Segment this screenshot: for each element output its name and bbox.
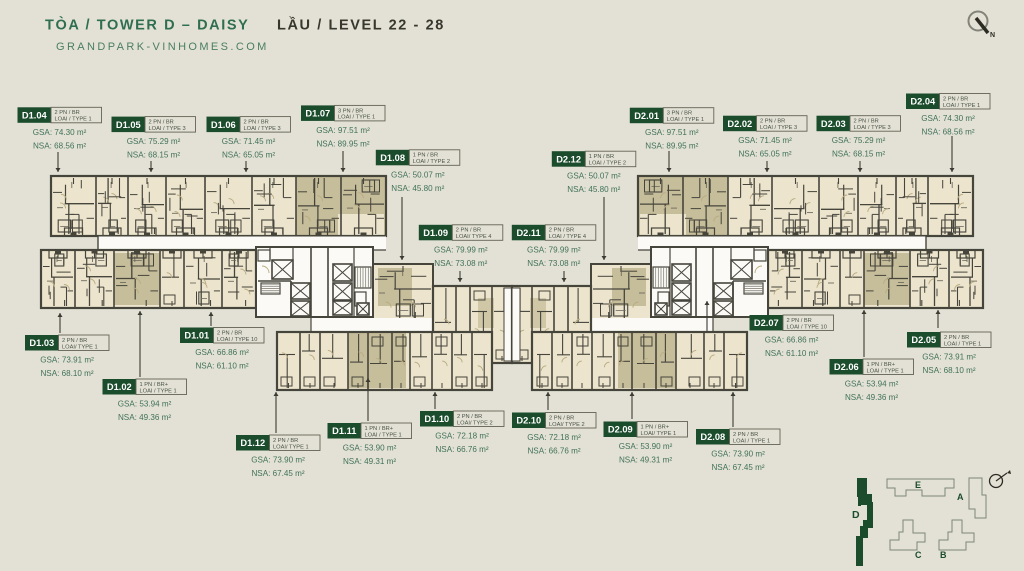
svg-text:D2.10: D2.10	[516, 416, 541, 426]
svg-text:LOAI / TYPE 4: LOAI / TYPE 4	[549, 234, 586, 240]
svg-text:NSA: 89.95 m²: NSA: 89.95 m²	[645, 142, 698, 151]
svg-text:NSA: 61.10 m²: NSA: 61.10 m²	[195, 362, 248, 371]
svg-text:2 PN / BR: 2 PN / BR	[62, 338, 87, 344]
svg-text:GSA: 97.51 m²: GSA: 97.51 m²	[645, 128, 699, 137]
svg-text:2 PN / BR: 2 PN / BR	[943, 96, 968, 102]
svg-text:D1.02: D1.02	[107, 382, 132, 392]
svg-text:LOAI/ TYPE 4: LOAI/ TYPE 4	[456, 234, 492, 240]
svg-text:D1.12: D1.12	[240, 438, 265, 448]
svg-text:NSA: 89.95 m²: NSA: 89.95 m²	[316, 139, 369, 148]
svg-text:2 PN / BR: 2 PN / BR	[149, 120, 174, 126]
svg-text:NSA: 45.80 m²: NSA: 45.80 m²	[391, 184, 444, 193]
svg-text:B: B	[940, 550, 947, 560]
svg-text:NSA: 68.15 m²: NSA: 68.15 m²	[832, 150, 885, 159]
svg-text:GSA: 53.94 m²: GSA: 53.94 m²	[845, 380, 899, 389]
svg-text:D1.04: D1.04	[22, 111, 48, 121]
svg-text:1 PN / BR+: 1 PN / BR+	[365, 426, 394, 432]
svg-text:D2.12: D2.12	[556, 154, 581, 164]
svg-text:2 PN / BR: 2 PN / BR	[549, 228, 574, 234]
svg-text:2 PN / BR: 2 PN / BR	[787, 318, 812, 324]
svg-text:2 PN / BR: 2 PN / BR	[549, 415, 574, 421]
svg-text:LOAI/ TYPE 2: LOAI/ TYPE 2	[549, 422, 585, 428]
svg-text:2 PN / BR: 2 PN / BR	[760, 119, 785, 125]
svg-text:D1.01: D1.01	[184, 331, 209, 341]
svg-text:GSA: 53.94 m²: GSA: 53.94 m²	[118, 400, 172, 409]
svg-text:N: N	[990, 32, 995, 39]
svg-text:D1.03: D1.03	[29, 338, 54, 348]
svg-text:LOAI / TYPE 1: LOAI / TYPE 1	[55, 117, 92, 123]
svg-text:D2.11: D2.11	[516, 228, 540, 238]
svg-text:GSA: 75.29 m²: GSA: 75.29 m²	[127, 137, 181, 146]
svg-text:D1.11: D1.11	[332, 426, 356, 436]
svg-text:GSA: 75.29 m²: GSA: 75.29 m²	[832, 136, 886, 145]
svg-text:D1.09: D1.09	[423, 228, 448, 238]
svg-text:D2.01: D2.01	[634, 111, 659, 121]
svg-text:LOAI / TYPE 1: LOAI / TYPE 1	[944, 341, 981, 347]
svg-text:NSA: 67.45 m²: NSA: 67.45 m²	[711, 463, 764, 472]
svg-text:NSA: 73.08 m²: NSA: 73.08 m²	[527, 259, 580, 268]
svg-text:1 PN / BR+: 1 PN / BR+	[140, 382, 169, 388]
svg-text:GSA: 73.91 m²: GSA: 73.91 m²	[922, 353, 976, 362]
svg-text:C: C	[915, 550, 922, 560]
svg-text:NSA: 61.10 m²: NSA: 61.10 m²	[765, 349, 818, 358]
svg-text:GSA: 73.90 m²: GSA: 73.90 m²	[251, 456, 305, 465]
svg-text:LOAI / TYPE 1: LOAI / TYPE 1	[733, 438, 770, 444]
svg-text:GSA: 50.07 m²: GSA: 50.07 m²	[391, 170, 445, 179]
svg-text:2 PN / BR: 2 PN / BR	[854, 119, 879, 125]
svg-text:LOAI/ TYPE 2: LOAI/ TYPE 2	[457, 420, 493, 426]
svg-text:2 PN / BR: 2 PN / BR	[733, 432, 758, 438]
svg-text:1 PN / BR+: 1 PN / BR+	[867, 362, 896, 368]
svg-text:NSA: 68.56 m²: NSA: 68.56 m²	[921, 128, 974, 137]
svg-text:LOAI / TYPE 3: LOAI / TYPE 3	[760, 125, 797, 131]
svg-text:NSA: 68.56 m²: NSA: 68.56 m²	[33, 141, 86, 150]
svg-text:NSA: 68.15 m²: NSA: 68.15 m²	[127, 151, 180, 160]
svg-text:NSA: 73.08 m²: NSA: 73.08 m²	[434, 259, 487, 268]
svg-text:A: A	[957, 492, 964, 502]
svg-text:GSA: 73.90 m²: GSA: 73.90 m²	[711, 450, 765, 459]
svg-text:GSA: 97.51 m²: GSA: 97.51 m²	[316, 126, 370, 135]
svg-text:GSA: 79.99 m²: GSA: 79.99 m²	[527, 245, 581, 254]
svg-text:LOAI / TYPE 2: LOAI / TYPE 2	[413, 159, 450, 165]
svg-text:3 PN / BR: 3 PN / BR	[667, 111, 692, 117]
svg-text:D2.04: D2.04	[910, 97, 936, 107]
svg-text:D2.06: D2.06	[834, 362, 859, 372]
svg-text:NSA: 45.80 m²: NSA: 45.80 m²	[567, 185, 620, 194]
svg-text:NSA: 49.36 m²: NSA: 49.36 m²	[845, 393, 898, 402]
svg-text:GSA: 50.07 m²: GSA: 50.07 m²	[567, 172, 621, 181]
svg-text:D2.03: D2.03	[821, 119, 846, 129]
svg-text:GSA: 53.90 m²: GSA: 53.90 m²	[343, 444, 397, 453]
svg-text:D2.09: D2.09	[608, 425, 633, 435]
svg-text:GSA: 66.86 m²: GSA: 66.86 m²	[195, 348, 249, 357]
svg-text:GSA: 79.99 m²: GSA: 79.99 m²	[434, 245, 488, 254]
svg-text:GSA: 72.18 m²: GSA: 72.18 m²	[435, 432, 489, 441]
svg-text:LOAI / TYPE 10: LOAI / TYPE 10	[787, 324, 827, 330]
svg-text:LOAI / TYPE 10: LOAI / TYPE 10	[217, 337, 257, 343]
svg-text:LOAI / TYPE 1: LOAI / TYPE 1	[667, 117, 704, 123]
svg-text:D2.02: D2.02	[727, 119, 752, 129]
svg-text:D2.07: D2.07	[754, 318, 779, 328]
svg-text:GSA: 73.91 m²: GSA: 73.91 m²	[40, 356, 94, 365]
svg-text:2 PN / BR: 2 PN / BR	[456, 228, 481, 234]
svg-text:NSA: 68.10 m²: NSA: 68.10 m²	[922, 366, 975, 375]
svg-text:LOAI / TYPE 1: LOAI / TYPE 1	[867, 368, 904, 374]
svg-text:3 PN / BR: 3 PN / BR	[338, 108, 363, 114]
svg-text:NSA: 67.45 m²: NSA: 67.45 m²	[251, 469, 304, 478]
svg-text:LOAI / TYPE 1: LOAI / TYPE 1	[338, 115, 375, 121]
svg-text:GSA: 72.18 m²: GSA: 72.18 m²	[527, 433, 581, 442]
svg-text:LOAI / TYPE 3: LOAI / TYPE 3	[854, 125, 891, 131]
svg-text:GRANDPARK-VINHOMES.COM: GRANDPARK-VINHOMES.COM	[56, 41, 269, 53]
svg-text:D1.08: D1.08	[380, 153, 405, 163]
svg-text:1 PN / BR: 1 PN / BR	[413, 153, 438, 159]
svg-text:LOAI/ TYPE 1: LOAI/ TYPE 1	[273, 444, 309, 450]
svg-text:2 PN / BR: 2 PN / BR	[55, 110, 80, 116]
svg-text:LOAI / TYPE 1: LOAI / TYPE 1	[365, 432, 402, 438]
svg-text:LOAI / TYPE 3: LOAI / TYPE 3	[244, 126, 281, 132]
svg-text:GSA: 66.86 m²: GSA: 66.86 m²	[765, 336, 819, 345]
svg-text:1 PN / BR+: 1 PN / BR+	[641, 424, 670, 430]
svg-text:D2.05: D2.05	[911, 335, 936, 345]
svg-text:NSA: 66.76 m²: NSA: 66.76 m²	[527, 447, 580, 456]
svg-text:GSA: 71.45 m²: GSA: 71.45 m²	[738, 136, 792, 145]
svg-text:2 PN / BR: 2 PN / BR	[244, 120, 269, 126]
svg-text:2 PN / BR: 2 PN / BR	[273, 438, 298, 444]
svg-text:D: D	[852, 509, 860, 521]
svg-text:NSA: 68.10 m²: NSA: 68.10 m²	[40, 369, 93, 378]
svg-text:GSA: 53.90 m²: GSA: 53.90 m²	[619, 442, 673, 451]
svg-text:D1.05: D1.05	[116, 120, 141, 130]
svg-text:NSA: 49.31 m²: NSA: 49.31 m²	[619, 456, 672, 465]
svg-text:NSA: 49.36 m²: NSA: 49.36 m²	[118, 413, 171, 422]
svg-text:GSA: 71.45 m²: GSA: 71.45 m²	[222, 137, 276, 146]
svg-text:GSA: 74.30 m²: GSA: 74.30 m²	[33, 128, 87, 137]
svg-text:D2.08: D2.08	[700, 432, 725, 442]
svg-text:2 PN / BR: 2 PN / BR	[944, 335, 969, 341]
svg-text:LOAI / TYPE 1: LOAI / TYPE 1	[943, 103, 980, 109]
svg-text:E: E	[915, 480, 921, 490]
svg-text:LOAI / TYPE 2: LOAI / TYPE 2	[589, 161, 626, 167]
svg-text:LOAI/ TYPE 1: LOAI/ TYPE 1	[641, 431, 677, 437]
svg-text:D1.10: D1.10	[424, 414, 449, 424]
svg-text:LOAI / TYPE 1: LOAI / TYPE 1	[140, 388, 177, 394]
svg-text:LOAI/ TYPE 1: LOAI/ TYPE 1	[62, 344, 98, 350]
svg-text:2 PN / BR: 2 PN / BR	[457, 414, 482, 420]
svg-text:NSA: 49.31 m²: NSA: 49.31 m²	[343, 457, 396, 466]
svg-text:D1.06: D1.06	[211, 120, 236, 130]
svg-text:2 PN / BR: 2 PN / BR	[217, 330, 242, 336]
svg-text:LOAI / TYPE 3: LOAI / TYPE 3	[149, 126, 186, 132]
svg-text:D1.07: D1.07	[305, 109, 330, 119]
svg-text:NSA: 66.76 m²: NSA: 66.76 m²	[435, 445, 488, 454]
svg-text:NSA: 65.05 m²: NSA: 65.05 m²	[222, 151, 275, 160]
svg-text:TÒA / TOWER D – DAISYLẦU / LEV: TÒA / TOWER D – DAISYLẦU / LEVEL 22 - 28	[45, 16, 445, 34]
svg-text:NSA: 65.05 m²: NSA: 65.05 m²	[738, 150, 791, 159]
svg-text:GSA: 74.30 m²: GSA: 74.30 m²	[921, 114, 975, 123]
svg-text:1 PN / BR: 1 PN / BR	[589, 154, 614, 160]
